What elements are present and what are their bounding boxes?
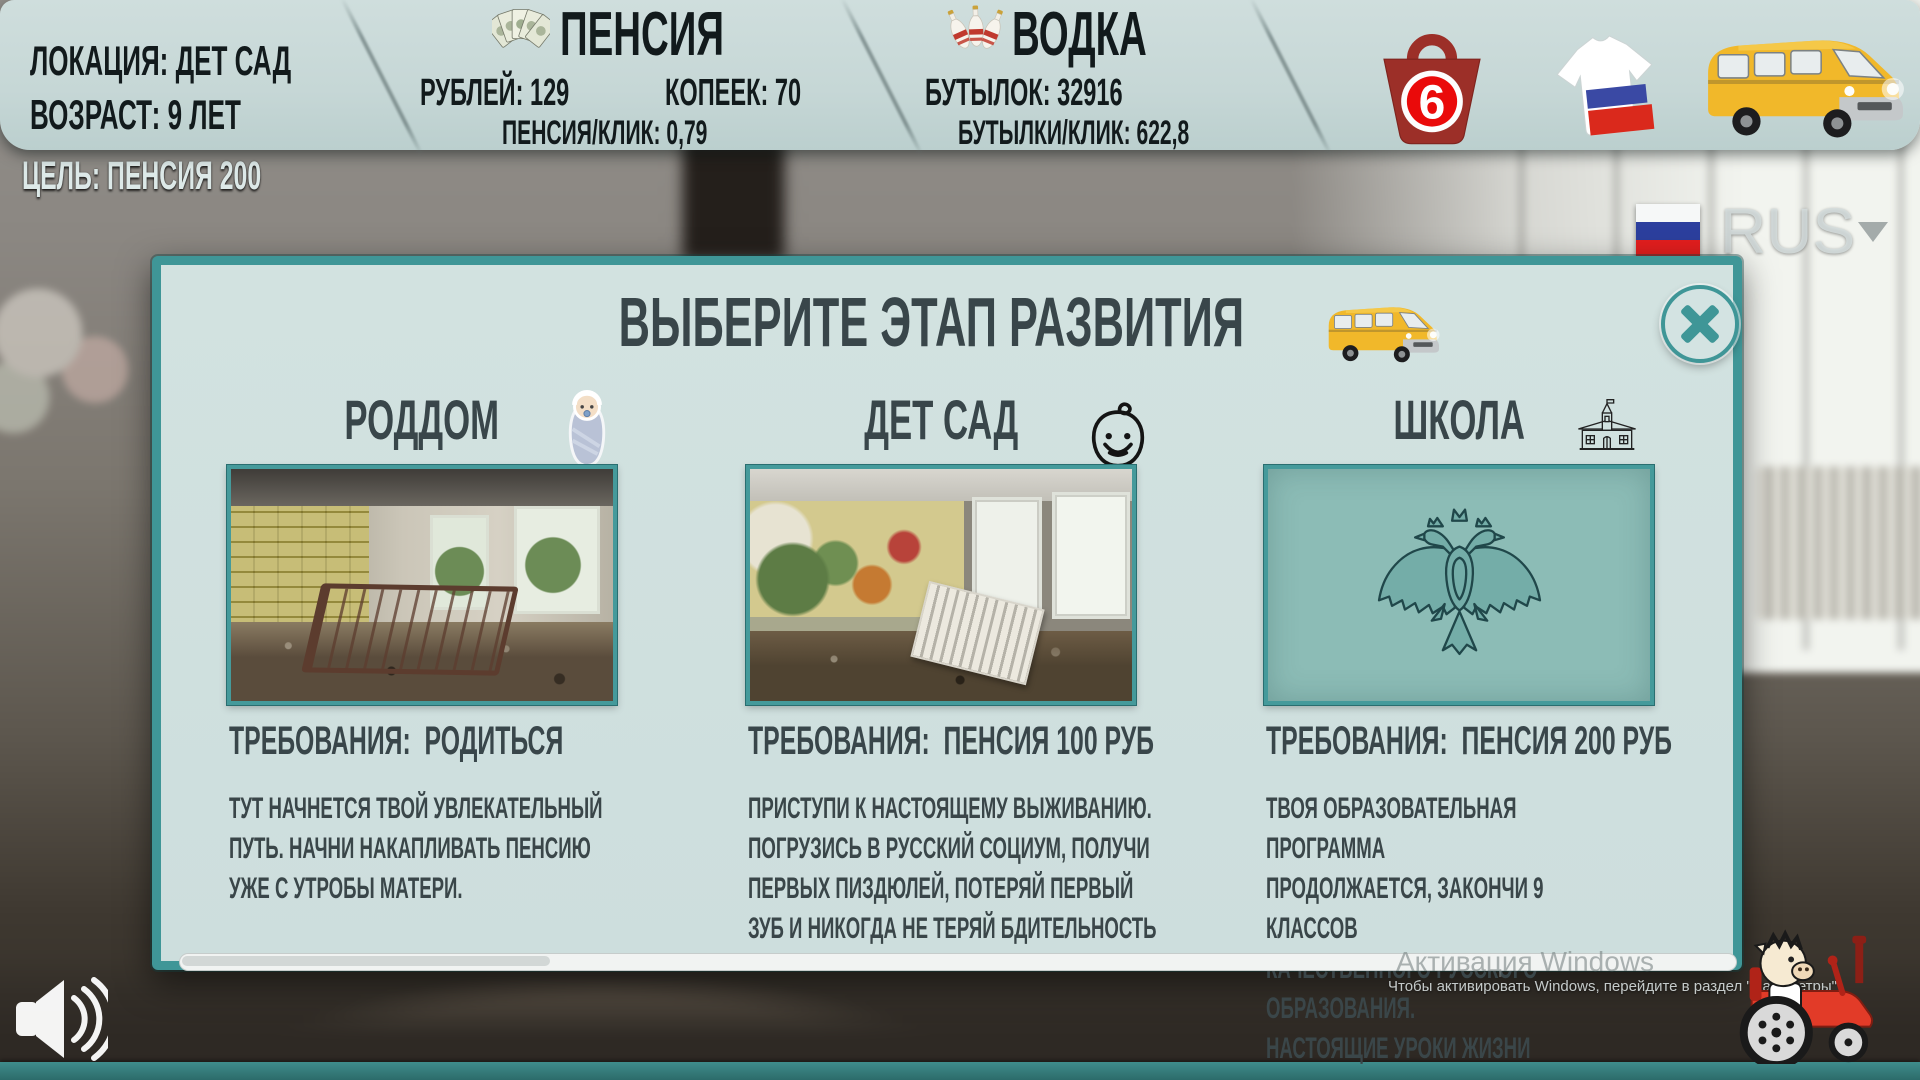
money-fan-icon bbox=[492, 6, 550, 60]
pension-per-click: ПЕНСИЯ/КЛИК: 0,79 bbox=[502, 116, 707, 150]
panel-divider bbox=[1249, 0, 1333, 157]
school-building-icon bbox=[1577, 387, 1637, 463]
chevron-down-icon bbox=[1858, 222, 1888, 242]
tshirt-flag-icon[interactable] bbox=[1544, 26, 1668, 142]
photo-radiator bbox=[1756, 467, 1920, 620]
bottom-bar bbox=[0, 1062, 1920, 1080]
language-selector[interactable]: RUS bbox=[1630, 192, 1900, 264]
close-icon[interactable] bbox=[1661, 285, 1739, 363]
kopecks-counter: КОПЕЕК: 70 bbox=[665, 74, 801, 112]
age-label: ВОЗРАСТ: 9 ЛЕТ bbox=[30, 94, 241, 136]
pig-on-tractor-icon[interactable] bbox=[1722, 922, 1880, 1064]
swaddled-baby-icon bbox=[561, 389, 613, 469]
stage-requirement: ТРЕБОВАНИЯ: ПЕНСИЯ 100 РУБ bbox=[748, 721, 1154, 761]
stage-description: ПРИСТУПИ К НАСТОЯЩЕМУ ВЫЖИВАНИЮ. ПОГРУЗИ… bbox=[748, 789, 1157, 949]
stage-description: ТВОЯ ОБРАЗОВАТЕЛЬНАЯ ПРОГРАММА ПРОДОЛЖАЕ… bbox=[1266, 789, 1556, 1069]
photo-window bbox=[514, 506, 600, 614]
bag-badge-number: 6 bbox=[1419, 77, 1446, 130]
photo-ceiling bbox=[231, 469, 613, 506]
game-screen: ЦЕЛЬ: ПЕНСИЯ 200 RUS ЛОКАЦИЯ: ДЕТ САД ВО… bbox=[0, 0, 1920, 1080]
emblem-panel bbox=[1268, 469, 1650, 701]
photo-mural bbox=[0, 260, 144, 444]
stage-name: РОДДОМ bbox=[227, 392, 617, 448]
photo-doorway bbox=[683, 138, 785, 260]
child-face-icon bbox=[1081, 401, 1155, 475]
windows-activation-watermark: Активация Windows bbox=[1396, 946, 1654, 978]
stage-photo-school[interactable] bbox=[1264, 465, 1654, 705]
vodka-title: ВОДКА bbox=[1012, 4, 1147, 66]
shop-bag-icon[interactable]: 6 bbox=[1366, 18, 1498, 146]
goal-label: ЦЕЛЬ: ПЕНСИЯ 200 bbox=[22, 156, 261, 196]
speaker-icon[interactable] bbox=[12, 972, 108, 1068]
stage-requirement: ТРЕБОВАНИЯ: ПЕНСИЯ 200 РУБ bbox=[1266, 721, 1672, 761]
stage-select-dialog: ВЫБЕРИТЕ ЭТАП РАЗВИТИЯ РОДДОМ bbox=[152, 256, 1742, 970]
location-label: ЛОКАЦИЯ: ДЕТ САД bbox=[30, 40, 291, 82]
scrollbar-thumb[interactable] bbox=[182, 956, 550, 966]
bottles-per-click: БУТЫЛКИ/КЛИК: 622,8 bbox=[958, 116, 1189, 150]
photo-window bbox=[1052, 492, 1131, 619]
van-icon bbox=[1323, 297, 1443, 367]
photo-bed-frame bbox=[301, 583, 519, 675]
stage-description: ТУТ НАЧНЕТСЯ ТВОЙ УВЛЕКАТЕЛЬНЫЙ ПУТЬ. НА… bbox=[229, 789, 603, 909]
pension-title: ПЕНСИЯ bbox=[560, 4, 724, 66]
stage-name: ДЕТ САД bbox=[746, 392, 1136, 448]
stage-photo-roddom[interactable] bbox=[227, 465, 617, 705]
bottles-counter: БУТЫЛОК: 32916 bbox=[925, 74, 1123, 112]
panel-divider bbox=[840, 0, 924, 157]
van-icon[interactable] bbox=[1698, 22, 1910, 146]
stage-photo-detsad[interactable] bbox=[746, 465, 1136, 705]
vodka-bottles-icon bbox=[946, 4, 1006, 62]
russia-flag-icon bbox=[1636, 204, 1700, 258]
stage-requirement: ТРЕБОВАНИЯ: РОДИТЬСЯ bbox=[229, 721, 563, 761]
panel-divider bbox=[340, 0, 424, 157]
rubles-counter: РУБЛЕЙ: 129 bbox=[420, 74, 569, 112]
top-hud-panel: ЛОКАЦИЯ: ДЕТ САД ВОЗРАСТ: 9 ЛЕТ ПЕНСИЯ Р… bbox=[0, 0, 1920, 150]
eagle-emblem bbox=[1367, 493, 1552, 678]
